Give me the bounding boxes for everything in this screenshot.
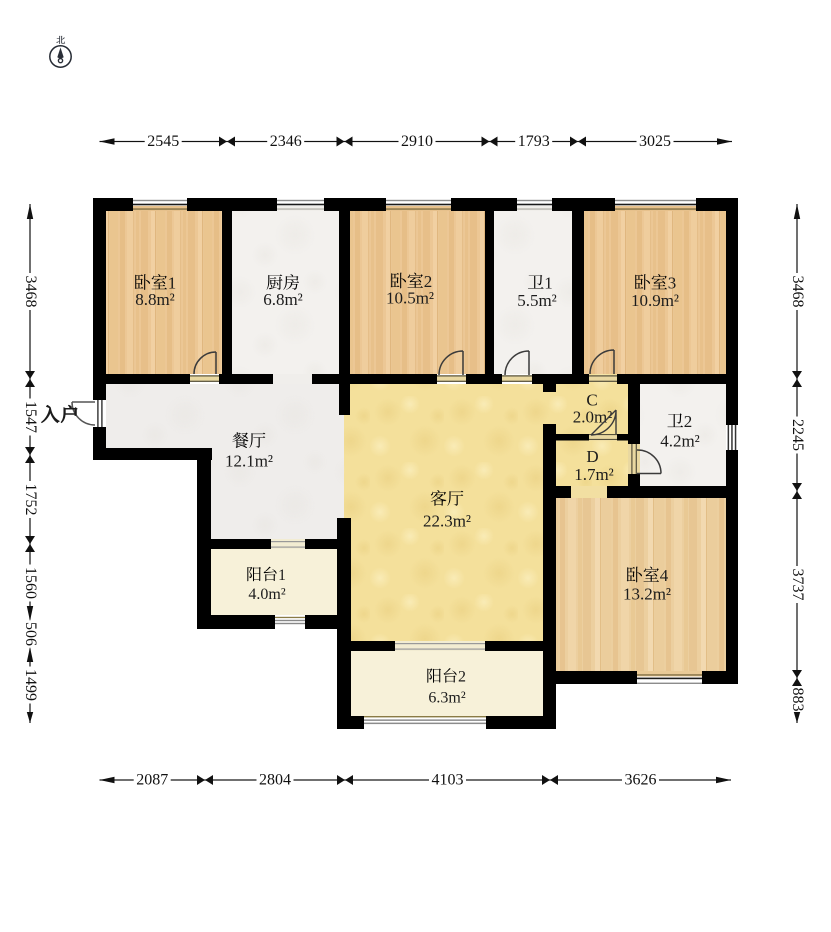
svg-text:2346: 2346 [270,133,302,150]
svg-text:5.5m²: 5.5m² [517,291,557,310]
svg-text:12.1m²: 12.1m² [225,452,273,471]
svg-text:506: 506 [22,622,39,646]
svg-text:1793: 1793 [518,133,550,150]
svg-text:13.2m²: 13.2m² [623,585,671,604]
svg-text:1547: 1547 [22,401,39,433]
svg-text:1752: 1752 [22,484,39,516]
svg-text:10.9m²: 10.9m² [631,291,679,310]
svg-text:2.0m²: 2.0m² [573,408,613,427]
svg-text:D: D [586,447,598,466]
svg-text:6.3m²: 6.3m² [428,690,465,707]
svg-text:1: 1 [544,274,553,293]
svg-text:3468: 3468 [789,276,806,308]
svg-text:4.2m²: 4.2m² [660,432,700,451]
svg-text:1.7m²: 1.7m² [574,465,614,484]
svg-text:3737: 3737 [789,569,806,601]
svg-text:3468: 3468 [22,276,39,308]
svg-text:2245: 2245 [789,419,806,451]
svg-text:1560: 1560 [22,567,39,599]
svg-text:2545: 2545 [147,133,179,150]
svg-text:10.5m²: 10.5m² [386,289,434,308]
svg-text:6.8m²: 6.8m² [263,290,303,309]
svg-text:8.8m²: 8.8m² [135,290,175,309]
svg-text:2: 2 [458,669,466,686]
svg-text:2804: 2804 [259,771,291,788]
svg-text:2: 2 [684,412,693,431]
svg-text:3025: 3025 [639,133,671,150]
svg-text:4.0m²: 4.0m² [248,586,285,603]
svg-text:3626: 3626 [625,771,657,788]
svg-text:3: 3 [668,274,677,293]
svg-text:1499: 1499 [22,669,39,701]
svg-text:883: 883 [789,688,806,712]
svg-text:4103: 4103 [432,771,464,788]
svg-text:22.3m²: 22.3m² [423,512,471,531]
svg-text:1: 1 [278,567,286,584]
svg-text:2910: 2910 [401,133,433,150]
svg-text:4: 4 [660,566,669,585]
svg-text:2087: 2087 [136,771,168,788]
